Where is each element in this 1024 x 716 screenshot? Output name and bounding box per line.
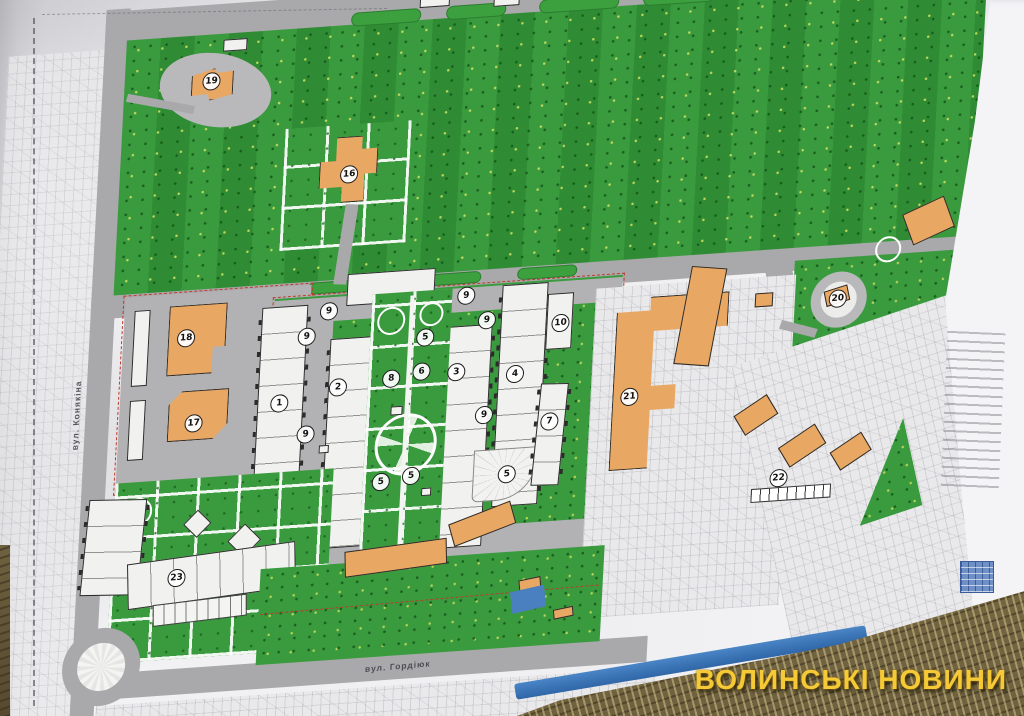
site-plan-map: вул. Конякіна вул. Гордіюк 19 16 18 17 1… (0, 0, 1024, 716)
watermark: ВОЛИНСЬКІ НОВИНИ (655, 664, 1007, 706)
service-shed (390, 406, 402, 416)
service-shed (421, 487, 431, 496)
building-small (755, 292, 774, 307)
photo-of-site-plan-banner: вул. Конякіна вул. Гордіюк 19 16 18 17 1… (0, 0, 1024, 716)
blue-stamp-icon (960, 561, 994, 593)
margin-annotation-lines (941, 331, 1006, 491)
service-shed (319, 445, 329, 454)
grass-left-sliver (0, 545, 10, 716)
map-frame-line-vertical (33, 18, 35, 706)
garage-strip (127, 400, 146, 461)
bus-stop (223, 38, 248, 52)
